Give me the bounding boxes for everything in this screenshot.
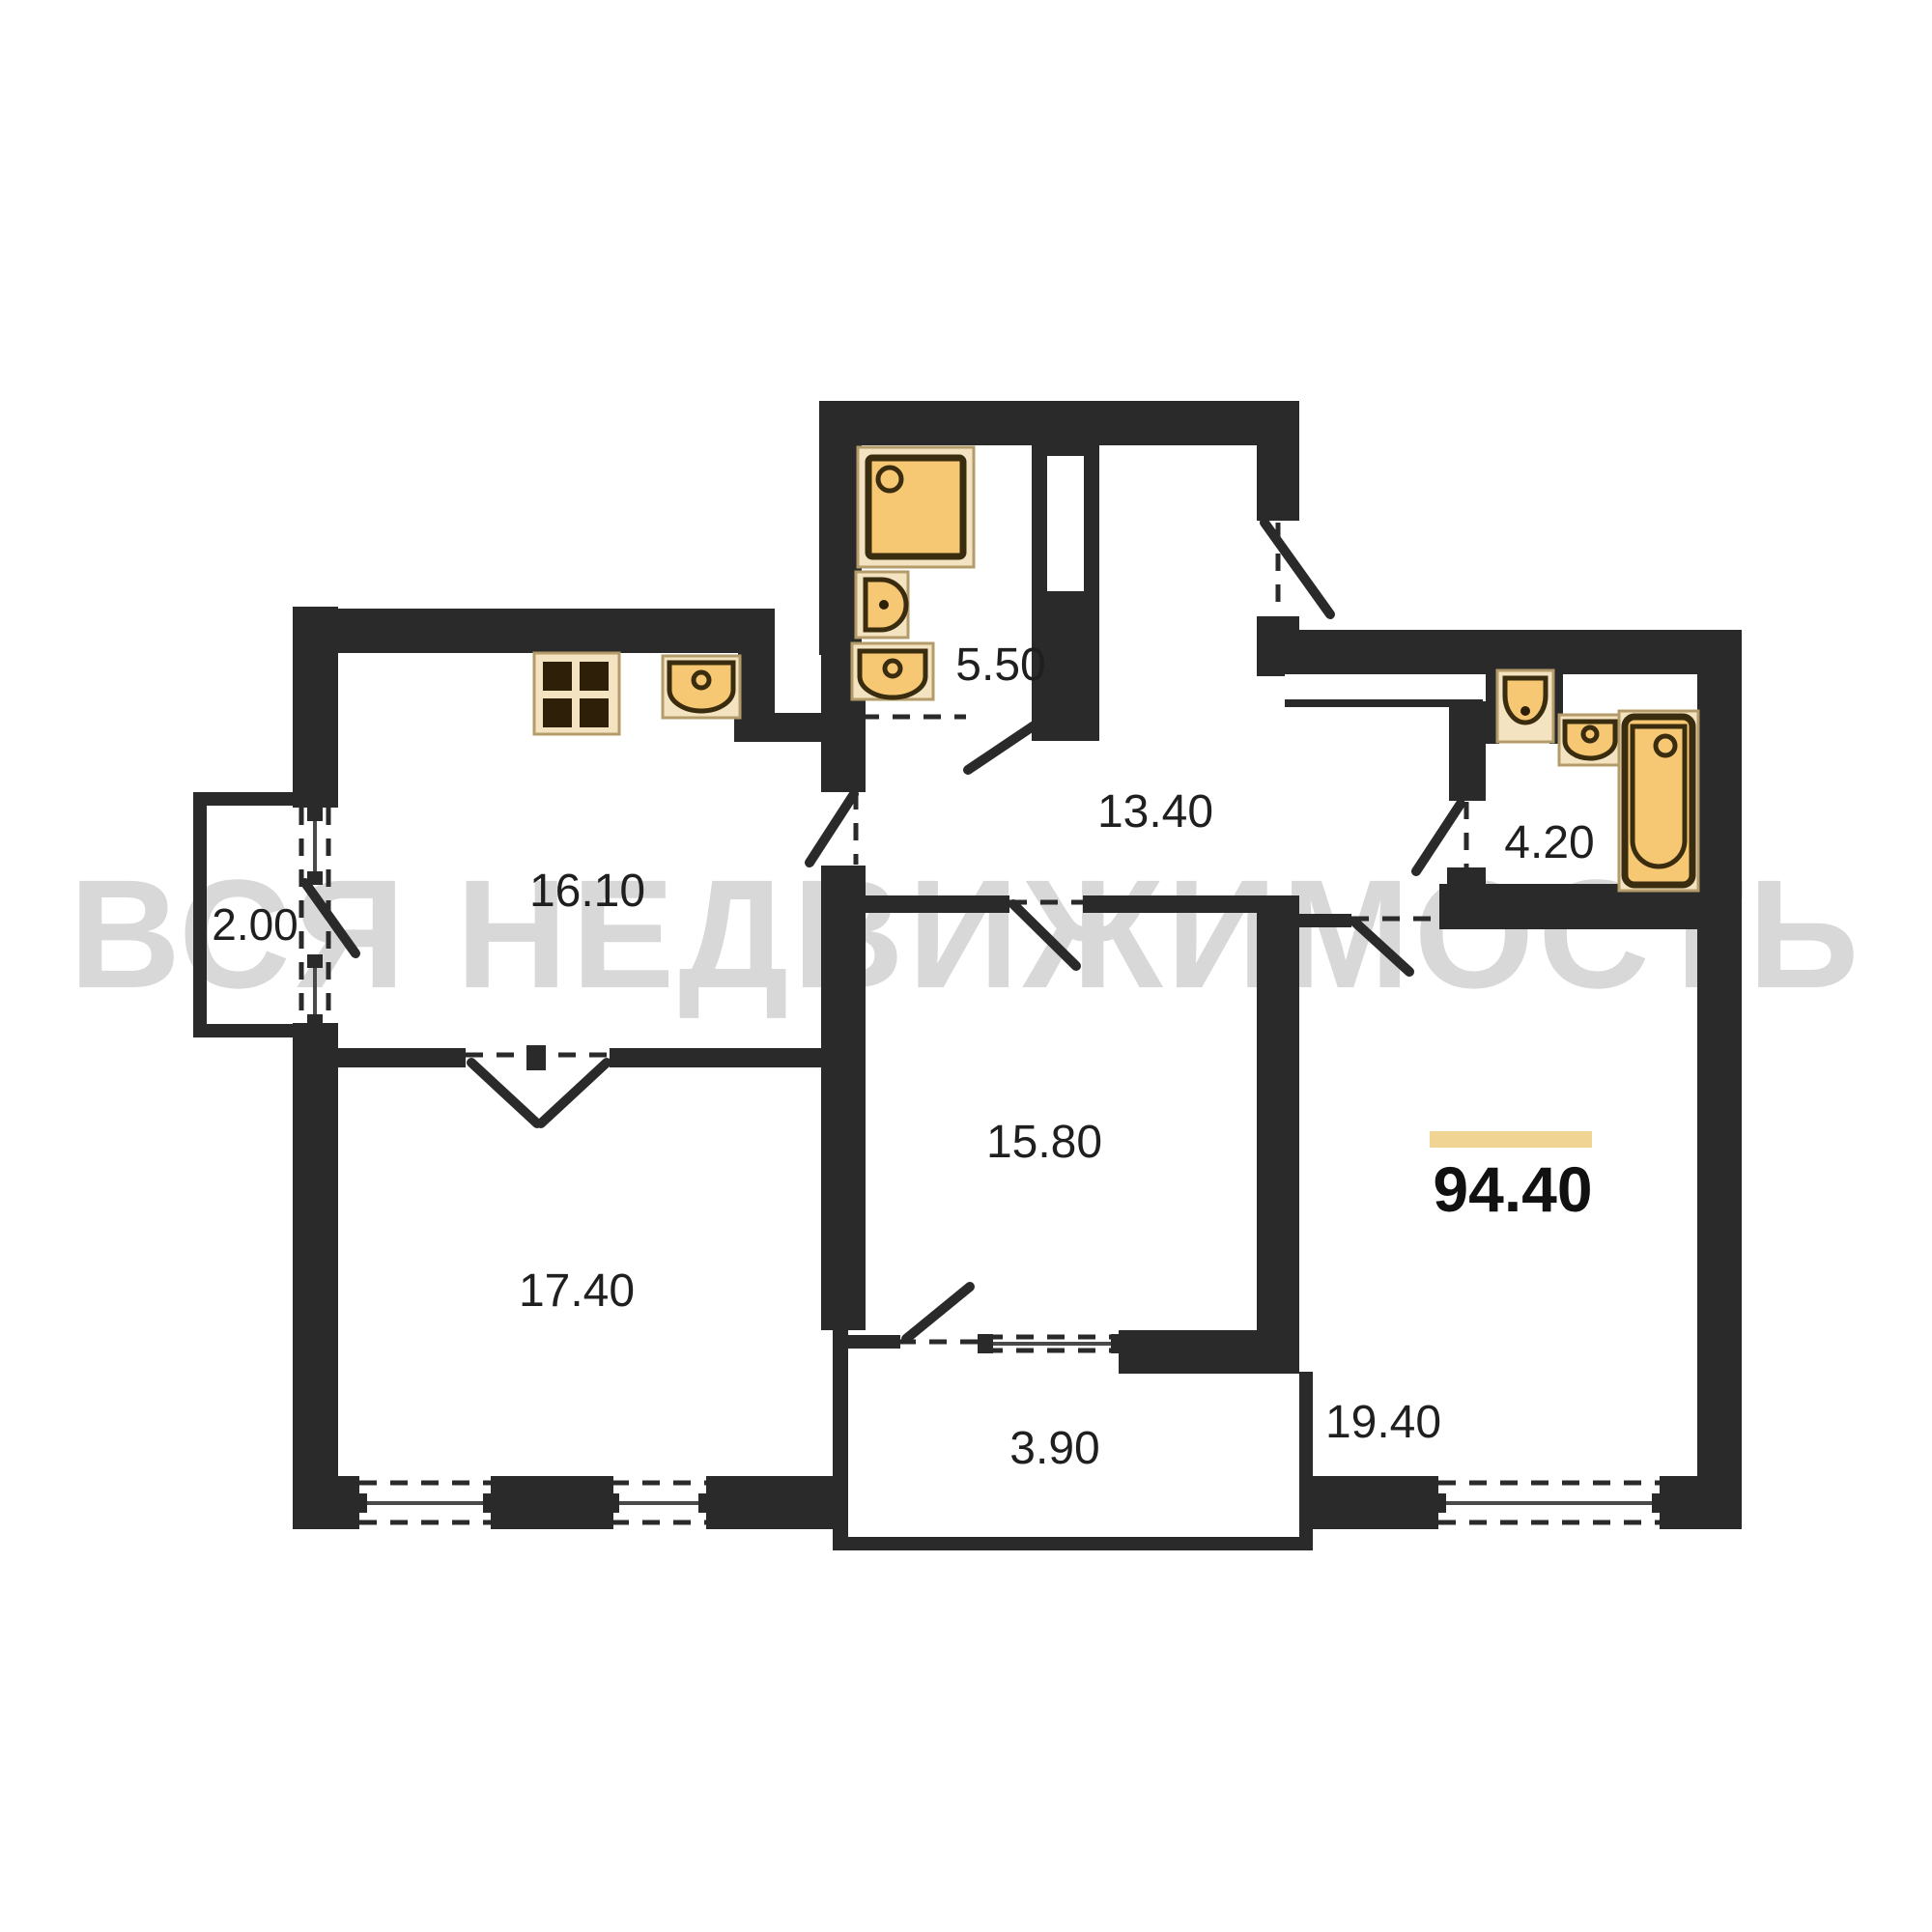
room-area-label-hallway: 13.40 <box>1097 786 1213 838</box>
bathtub-icon <box>1619 711 1698 891</box>
sink-icon <box>852 643 933 699</box>
toilet-icon <box>856 572 908 638</box>
room-area-label-bathroom-right: 4.20 <box>1504 817 1594 868</box>
stove-icon <box>534 653 619 734</box>
room-area-label-room-bottom-right: 19.40 <box>1325 1397 1441 1448</box>
toilet-icon <box>1497 670 1553 742</box>
room-area-label-kitchen: 16.10 <box>529 866 645 917</box>
room-area-label-balcony-left: 2.00 <box>212 899 298 950</box>
floor-plan-canvas: ВСЯ НЕДВИЖИМОСТЬ <box>0 0 1932 1932</box>
room-area-label-room-bottom-left: 17.40 <box>519 1265 635 1317</box>
room-area-label-loggia-bottom: 3.90 <box>1009 1423 1099 1474</box>
total-area-underline <box>1430 1131 1592 1148</box>
sink-icon <box>1559 715 1621 765</box>
total-area-block: 94.40 <box>1430 1131 1593 1225</box>
room-area-label-bathroom-top: 5.50 <box>955 639 1045 691</box>
floor-plan-svg: ВСЯ НЕДВИЖИМОСТЬ <box>0 0 1932 1932</box>
total-area-value: 94.40 <box>1433 1153 1592 1225</box>
room-area-label-room-middle: 15.80 <box>986 1117 1102 1168</box>
kitchen-sink-icon <box>663 656 740 718</box>
shower-icon <box>858 447 974 567</box>
